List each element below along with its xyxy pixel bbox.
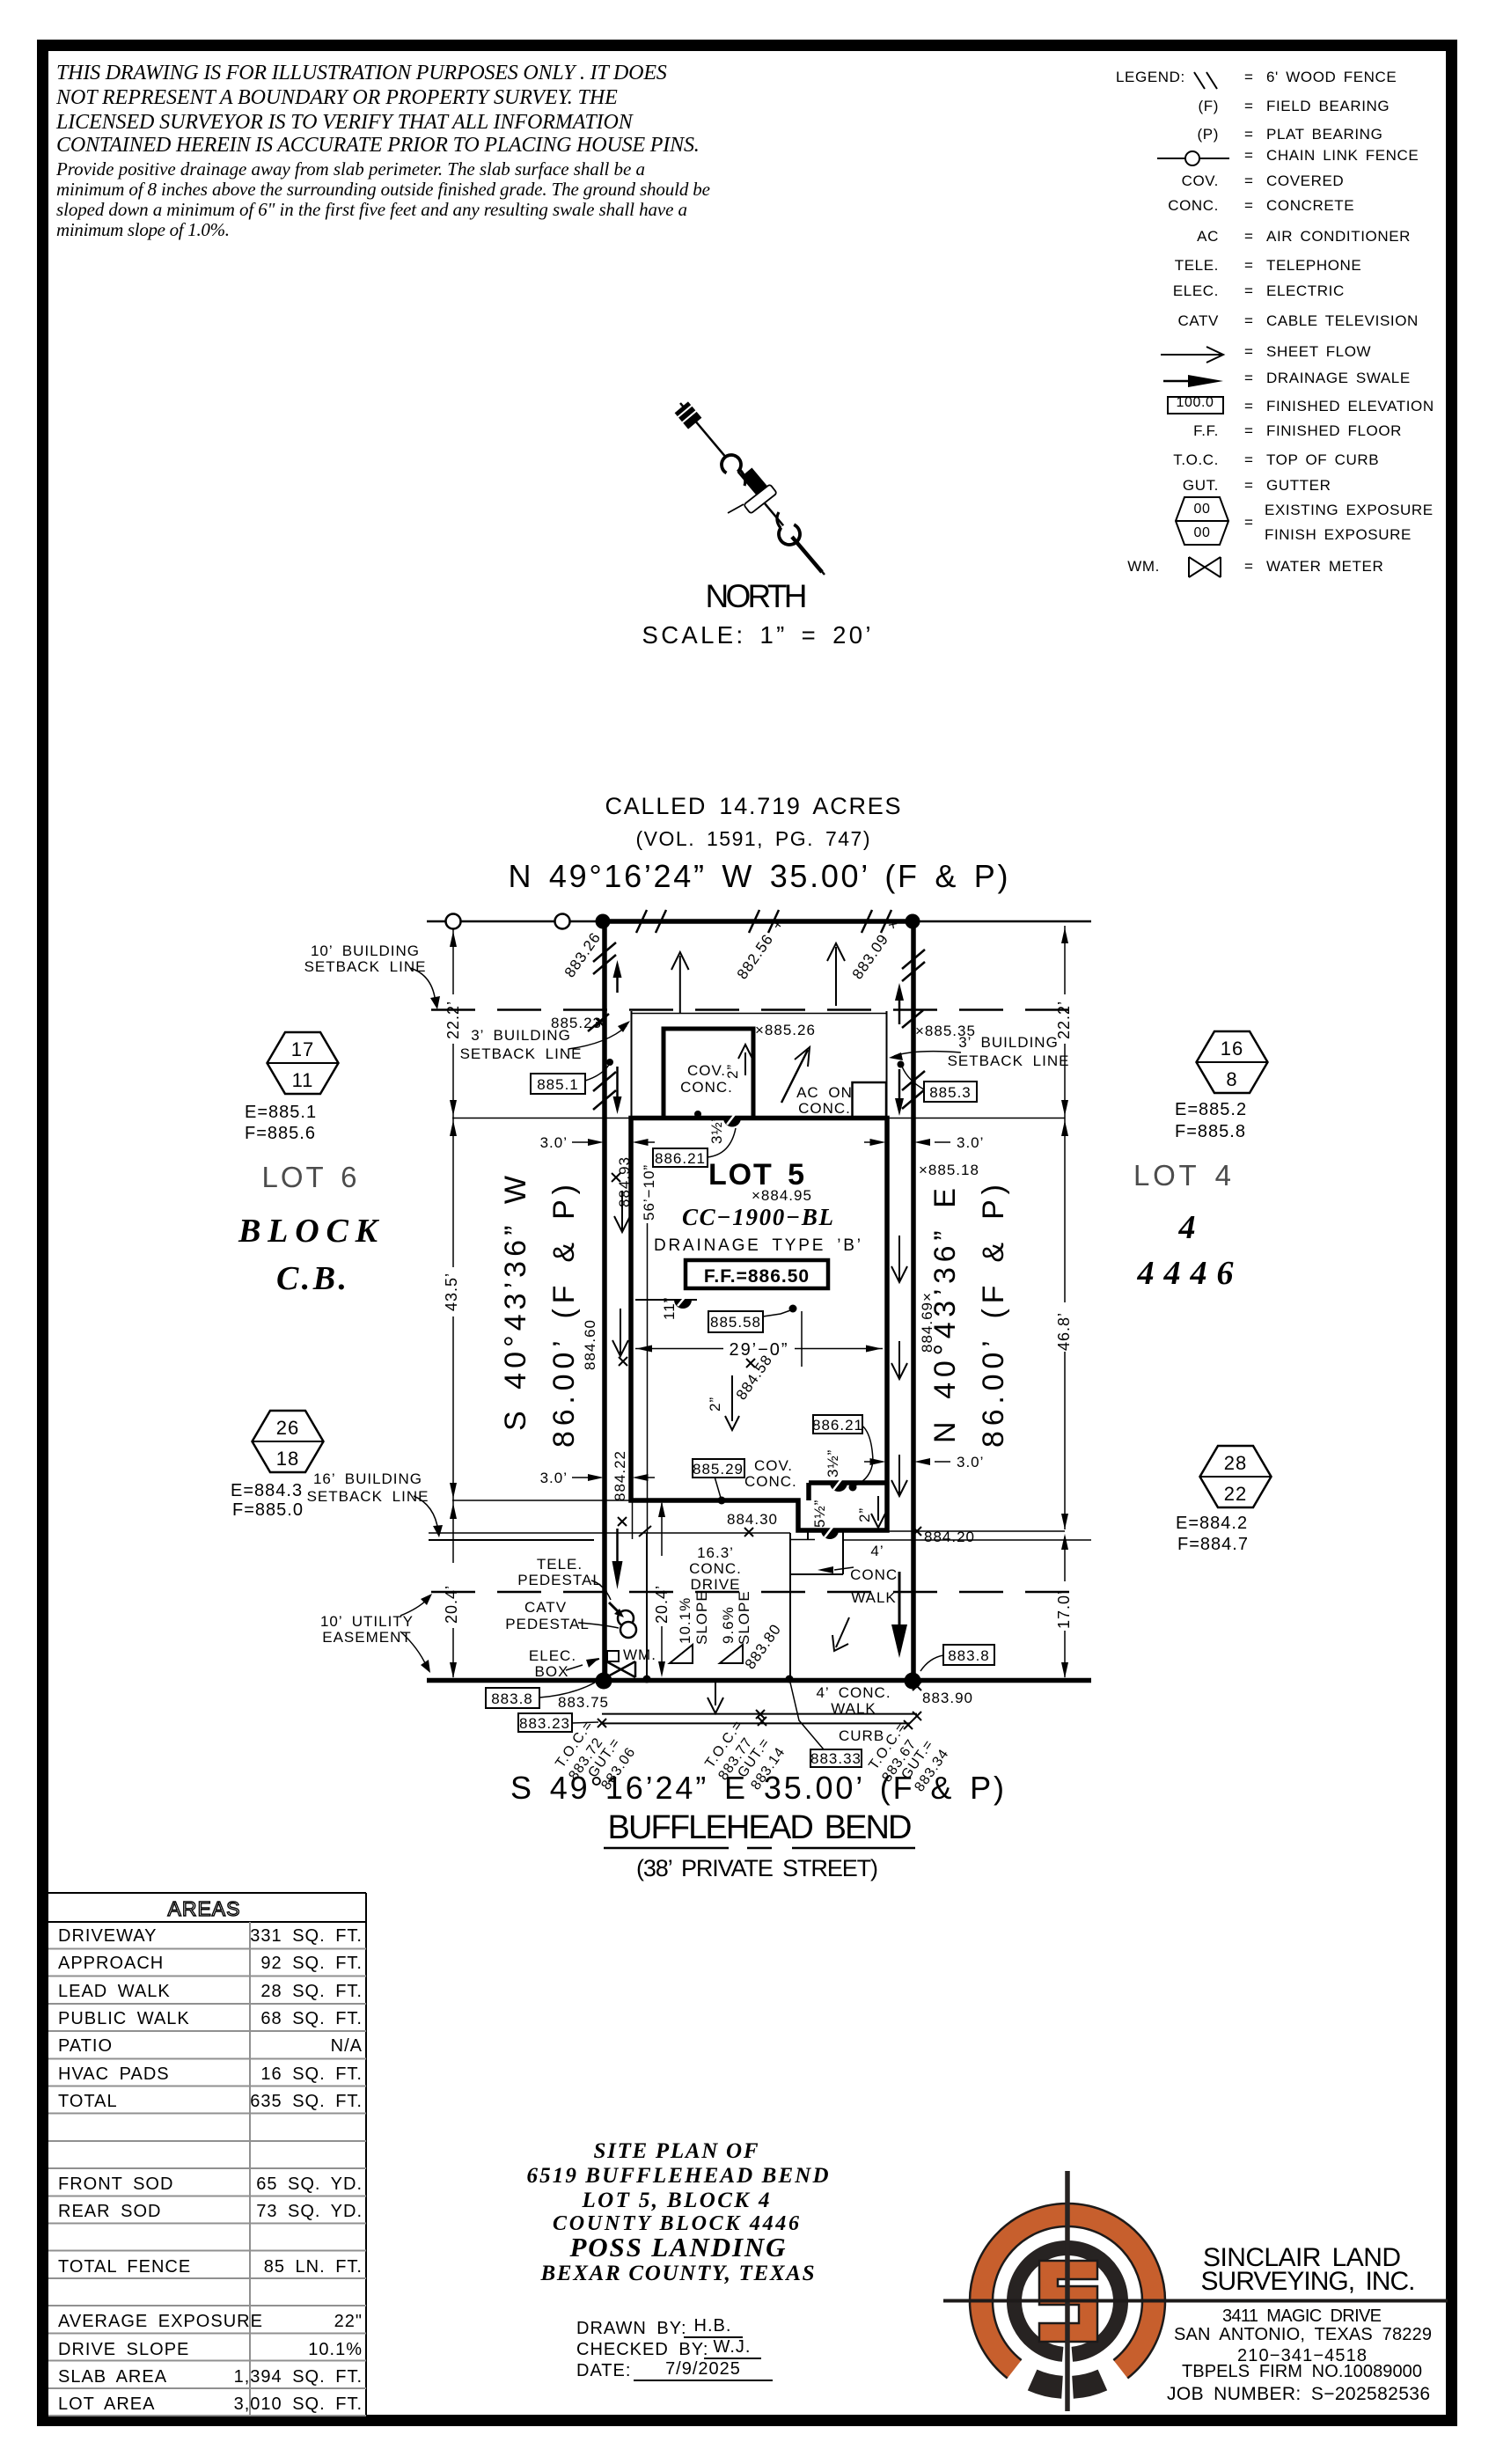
svg-text:PEDESTAL: PEDESTAL bbox=[505, 1616, 590, 1632]
svg-text:883.8: 883.8 bbox=[948, 1647, 990, 1664]
svg-text:2”: 2” bbox=[707, 1397, 723, 1412]
svg-text:=: = bbox=[1244, 126, 1254, 143]
svg-text:ELEC.: ELEC. bbox=[529, 1647, 576, 1664]
svg-text:LEGEND:: LEGEND: bbox=[1116, 69, 1185, 85]
svg-text:SETBACK LINE: SETBACK LINE bbox=[948, 1052, 1070, 1069]
svg-text:884.60: 884.60 bbox=[582, 1319, 598, 1370]
svg-text:8: 8 bbox=[1226, 1068, 1237, 1090]
svg-text:22.2’: 22.2’ bbox=[444, 1001, 462, 1039]
svg-text:16.3’: 16.3’ bbox=[697, 1544, 734, 1561]
svg-text:PEDESTAL: PEDESTAL bbox=[517, 1572, 602, 1588]
svg-text:APPROACH: APPROACH bbox=[58, 1954, 164, 1973]
svg-text:CONC.: CONC. bbox=[744, 1473, 797, 1490]
svg-text:CATV: CATV bbox=[524, 1599, 567, 1616]
svg-text:883.23: 883.23 bbox=[519, 1715, 570, 1732]
svg-text:WATER METER: WATER METER bbox=[1266, 558, 1383, 575]
svg-text:BOX: BOX bbox=[535, 1663, 569, 1680]
svg-text:PLAT BEARING: PLAT BEARING bbox=[1266, 126, 1382, 143]
svg-text:NORTH: NORTH bbox=[706, 578, 809, 614]
svg-text:28 SQ. FT.: 28 SQ. FT. bbox=[260, 1982, 363, 2001]
svg-text:×885.26: ×885.26 bbox=[755, 1022, 816, 1038]
svg-text:CHAIN LINK FENCE: CHAIN LINK FENCE bbox=[1266, 147, 1419, 164]
svg-text:POSS LANDING: POSS LANDING bbox=[569, 2232, 787, 2262]
svg-text:TOP OF CURB: TOP OF CURB bbox=[1266, 451, 1379, 468]
svg-text:3½”: 3½” bbox=[825, 1449, 841, 1478]
svg-text:DRIVEWAY: DRIVEWAY bbox=[58, 1926, 157, 1946]
svg-text:=: = bbox=[1244, 69, 1254, 85]
svg-text:AC: AC bbox=[1197, 228, 1219, 245]
svg-text:COVERED: COVERED bbox=[1266, 172, 1344, 189]
svg-text:WALK: WALK bbox=[831, 1700, 876, 1717]
svg-text:3’ BUILDING: 3’ BUILDING bbox=[958, 1034, 1059, 1051]
svg-text:6' WOOD FENCE: 6' WOOD FENCE bbox=[1266, 69, 1397, 85]
svg-text:SCALE: 1” = 20’: SCALE: 1” = 20’ bbox=[642, 621, 872, 649]
svg-text:WM.: WM. bbox=[1127, 558, 1160, 575]
svg-text:884.30: 884.30 bbox=[727, 1511, 778, 1528]
svg-text:883.8: 883.8 bbox=[491, 1690, 533, 1707]
svg-text:E=884.2: E=884.2 bbox=[1176, 1514, 1248, 1533]
svg-text:CONCRETE: CONCRETE bbox=[1266, 197, 1354, 214]
svg-text:GUT.: GUT. bbox=[1183, 477, 1219, 494]
svg-text:CONC.: CONC. bbox=[798, 1100, 851, 1117]
svg-text:JOB NUMBER: S−202582536: JOB NUMBER: S−202582536 bbox=[1167, 2384, 1431, 2404]
svg-text:=: = bbox=[1244, 558, 1254, 575]
svg-text:NOT REPRESENT A BOUNDARY OR PR: NOT REPRESENT A BOUNDARY OR PROPERTY SUR… bbox=[55, 86, 618, 109]
svg-text:17: 17 bbox=[291, 1038, 314, 1060]
svg-text:LOT 6: LOT 6 bbox=[262, 1161, 358, 1193]
svg-text:65 SQ. YD.: 65 SQ. YD. bbox=[256, 2174, 363, 2194]
svg-text:F=884.7: F=884.7 bbox=[1177, 1535, 1249, 1554]
svg-text:SLAB AREA: SLAB AREA bbox=[58, 2367, 167, 2387]
svg-text:COV.: COV. bbox=[754, 1457, 793, 1474]
svg-text:22": 22" bbox=[334, 2312, 363, 2331]
svg-text:3½”: 3½” bbox=[708, 1116, 725, 1144]
svg-text:FRONT SOD: FRONT SOD bbox=[58, 2174, 173, 2194]
svg-text:SETBACK LINE: SETBACK LINE bbox=[460, 1045, 583, 1062]
svg-text:=: = bbox=[1244, 514, 1254, 531]
svg-text:EXISTING EXPOSURE: EXISTING EXPOSURE bbox=[1265, 502, 1434, 518]
svg-text:11”: 11” bbox=[661, 1297, 678, 1320]
svg-text:6519 BUFFLEHEAD BEND: 6519 BUFFLEHEAD BEND bbox=[527, 2164, 829, 2188]
svg-text:22.2’: 22.2’ bbox=[1055, 1001, 1073, 1039]
svg-text:SLOPE: SLOPE bbox=[693, 1590, 710, 1645]
svg-text:COV.: COV. bbox=[687, 1062, 726, 1079]
svg-text:SAN ANTONIO, TEXAS 78229: SAN ANTONIO, TEXAS 78229 bbox=[1174, 2325, 1433, 2344]
svg-text:85 LN. FT.: 85 LN. FT. bbox=[264, 2257, 363, 2277]
svg-text:COV.: COV. bbox=[1182, 172, 1219, 189]
svg-text:20.4’: 20.4’ bbox=[653, 1585, 671, 1624]
svg-text:SETBACK LINE: SETBACK LINE bbox=[307, 1488, 429, 1505]
svg-text:=: = bbox=[1244, 98, 1254, 114]
svg-text:S 49°16’24” E 35.00’ (F & P): S 49°16’24” E 35.00’ (F & P) bbox=[510, 1770, 1005, 1806]
svg-text:22: 22 bbox=[1224, 1483, 1247, 1505]
svg-text:=: = bbox=[1244, 228, 1254, 245]
svg-text:3411 MAGIC DRIVE: 3411 MAGIC DRIVE bbox=[1222, 2306, 1382, 2326]
svg-text:ELEC.: ELEC. bbox=[1173, 282, 1219, 299]
svg-text:SHEET FLOW: SHEET FLOW bbox=[1266, 343, 1371, 360]
svg-text:635 SQ. FT.: 635 SQ. FT. bbox=[250, 2092, 363, 2111]
svg-text:BUFFLEHEAD BEND: BUFFLEHEAD BEND bbox=[608, 1809, 913, 1846]
svg-text:LOT 5, BLOCK 4: LOT 5, BLOCK 4 bbox=[582, 2189, 770, 2212]
svg-text:WALK: WALK bbox=[851, 1589, 897, 1606]
svg-text:CONTAINED HEREIN IS ACCURATE P: CONTAINED HEREIN IS ACCURATE PRIOR TO PL… bbox=[56, 134, 700, 157]
svg-text:×885.18: ×885.18 bbox=[919, 1162, 979, 1178]
svg-text:AIR CONDITIONER: AIR CONDITIONER bbox=[1266, 228, 1411, 245]
svg-text:=: = bbox=[1244, 172, 1254, 189]
svg-text:68 SQ. FT.: 68 SQ. FT. bbox=[260, 2009, 363, 2028]
svg-text:16 SQ. FT.: 16 SQ. FT. bbox=[260, 2064, 363, 2084]
svg-text:5½”: 5½” bbox=[811, 1500, 828, 1528]
svg-text:H.B.: H.B. bbox=[694, 2316, 732, 2336]
svg-text:331 SQ. FT.: 331 SQ. FT. bbox=[250, 1926, 363, 1946]
svg-text:26: 26 bbox=[276, 1417, 299, 1439]
svg-text:GUTTER: GUTTER bbox=[1266, 477, 1331, 494]
svg-text:CONC.: CONC. bbox=[1168, 197, 1219, 214]
svg-text:DATE:: DATE: bbox=[576, 2361, 631, 2380]
svg-text:00: 00 bbox=[1194, 525, 1211, 540]
svg-text:3.0’: 3.0’ bbox=[957, 1134, 984, 1151]
svg-text:=: = bbox=[1244, 398, 1254, 414]
svg-text:=: = bbox=[1244, 343, 1254, 360]
svg-text:PUBLIC WALK: PUBLIC WALK bbox=[58, 2009, 190, 2028]
svg-text:E=885.2: E=885.2 bbox=[1175, 1100, 1247, 1119]
svg-text:=: = bbox=[1244, 147, 1254, 164]
svg-text:4’ CONC.: 4’ CONC. bbox=[816, 1684, 891, 1701]
svg-text:4: 4 bbox=[1178, 1209, 1196, 1246]
svg-text:SETBACK LINE: SETBACK LINE bbox=[304, 958, 427, 975]
svg-text:1,394 SQ. FT.: 1,394 SQ. FT. bbox=[234, 2367, 363, 2387]
svg-text:3,010 SQ. FT.: 3,010 SQ. FT. bbox=[234, 2394, 363, 2414]
svg-text:T.O.C.: T.O.C. bbox=[1173, 451, 1219, 468]
svg-text:7/9/2025: 7/9/2025 bbox=[665, 2359, 741, 2379]
svg-text:DRIVE: DRIVE bbox=[691, 1576, 741, 1593]
svg-text:28: 28 bbox=[1224, 1452, 1247, 1474]
svg-text:TOTAL: TOTAL bbox=[58, 2092, 118, 2111]
svg-text:46.8’: 46.8’ bbox=[1055, 1312, 1073, 1351]
svg-text:(F): (F) bbox=[1198, 98, 1219, 114]
svg-text:10.1%: 10.1% bbox=[308, 2340, 363, 2359]
svg-text:3.0’: 3.0’ bbox=[957, 1454, 984, 1470]
svg-text:LOT 4: LOT 4 bbox=[1133, 1159, 1232, 1192]
svg-text:sloped down a minimum of 6" in: sloped down a minimum of 6" in the first… bbox=[56, 199, 687, 220]
svg-text:16: 16 bbox=[1221, 1038, 1243, 1060]
svg-text:2”: 2” bbox=[856, 1507, 873, 1522]
svg-text:16’ BUILDING: 16’ BUILDING bbox=[313, 1470, 422, 1487]
svg-text:TBPELS FIRM NO.10089000: TBPELS FIRM NO.10089000 bbox=[1182, 2362, 1423, 2381]
svg-text:F.F.: F.F. bbox=[1193, 422, 1219, 439]
svg-text:3.0’: 3.0’ bbox=[540, 1134, 568, 1151]
svg-text:LOT 5: LOT 5 bbox=[708, 1158, 805, 1192]
svg-text:=: = bbox=[1244, 451, 1254, 468]
svg-text:LEAD WALK: LEAD WALK bbox=[58, 1982, 171, 2001]
svg-text:CONC.: CONC. bbox=[689, 1560, 742, 1577]
svg-text:11: 11 bbox=[292, 1069, 314, 1091]
svg-text:minimum of 8 inches above the: minimum of 8 inches above the surroundin… bbox=[56, 179, 710, 200]
svg-text:CABLE TELEVISION: CABLE TELEVISION bbox=[1266, 312, 1419, 329]
svg-text:Provide positive drainage away: Provide positive drainage away from slab… bbox=[55, 158, 645, 180]
svg-text:EASEMENT: EASEMENT bbox=[322, 1629, 412, 1646]
svg-text:20.4’: 20.4’ bbox=[443, 1585, 460, 1624]
svg-text:884.93: 884.93 bbox=[616, 1156, 633, 1207]
svg-text:CONC.: CONC. bbox=[850, 1566, 903, 1583]
svg-text:WM.: WM. bbox=[623, 1646, 656, 1663]
svg-text:minimum slope of 1.0%.: minimum slope of 1.0%. bbox=[56, 219, 230, 240]
svg-text:CHECKED BY:: CHECKED BY: bbox=[576, 2340, 708, 2359]
svg-text:=: = bbox=[1244, 370, 1254, 386]
svg-text:885.1: 885.1 bbox=[537, 1076, 579, 1093]
svg-text:2”: 2” bbox=[724, 1064, 741, 1079]
svg-text:883.75: 883.75 bbox=[558, 1694, 609, 1711]
svg-text:F=885.6: F=885.6 bbox=[245, 1124, 316, 1143]
svg-text:LICENSED SURVEYOR IS TO VERIFY: LICENSED SURVEYOR IS TO VERIFY THAT ALL … bbox=[55, 111, 634, 134]
svg-text:ELECTRIC: ELECTRIC bbox=[1266, 282, 1345, 299]
svg-text:885.3: 885.3 bbox=[929, 1084, 972, 1101]
svg-text:884.20: 884.20 bbox=[924, 1529, 975, 1545]
svg-text:4’: 4’ bbox=[870, 1543, 884, 1559]
svg-text:HVAC PADS: HVAC PADS bbox=[58, 2064, 170, 2084]
svg-text:56’−10”: 56’−10” bbox=[641, 1164, 657, 1221]
svg-text:CURB: CURB bbox=[839, 1727, 884, 1744]
svg-text:TELEPHONE: TELEPHONE bbox=[1266, 257, 1361, 274]
svg-text:CALLED 14.719 ACRES: CALLED 14.719 ACRES bbox=[605, 793, 902, 819]
svg-text:10’ UTILITY: 10’ UTILITY bbox=[320, 1613, 414, 1630]
svg-text:884.22: 884.22 bbox=[612, 1450, 628, 1501]
svg-text:F.F.=886.50: F.F.=886.50 bbox=[704, 1266, 810, 1287]
svg-text:BLOCK: BLOCK bbox=[238, 1213, 380, 1250]
svg-text:PATIO: PATIO bbox=[58, 2036, 113, 2056]
svg-text:43.5’: 43.5’ bbox=[443, 1272, 460, 1311]
svg-text:=: = bbox=[1244, 282, 1254, 299]
svg-text:=: = bbox=[1244, 312, 1254, 329]
svg-text:17.0’: 17.0’ bbox=[1055, 1590, 1073, 1629]
svg-text:(VOL. 1591, PG. 747): (VOL. 1591, PG. 747) bbox=[636, 827, 871, 850]
svg-text:(P): (P) bbox=[1198, 126, 1219, 143]
svg-text:883.90: 883.90 bbox=[922, 1690, 973, 1706]
svg-text:CONC.: CONC. bbox=[680, 1079, 733, 1096]
svg-text:REAR SOD: REAR SOD bbox=[58, 2202, 161, 2221]
svg-text:AC ON: AC ON bbox=[796, 1084, 853, 1101]
svg-text:00: 00 bbox=[1194, 502, 1211, 517]
svg-text:FINISHED FLOOR: FINISHED FLOOR bbox=[1266, 422, 1402, 439]
svg-text:9.6%: 9.6% bbox=[720, 1606, 737, 1644]
svg-text:92 SQ. FT.: 92 SQ. FT. bbox=[260, 1954, 363, 1973]
svg-text:FINISH EXPOSURE: FINISH EXPOSURE bbox=[1265, 526, 1412, 543]
svg-text:F=885.8: F=885.8 bbox=[1175, 1122, 1246, 1141]
svg-text:F=885.0: F=885.0 bbox=[232, 1500, 304, 1520]
svg-text:DRAINAGE TYPE ’B’: DRAINAGE TYPE ’B’ bbox=[654, 1236, 862, 1255]
svg-text:N/A: N/A bbox=[331, 2036, 363, 2056]
svg-text:SURVEYING, INC.: SURVEYING, INC. bbox=[1201, 2267, 1417, 2296]
svg-text:885.58: 885.58 bbox=[710, 1314, 761, 1331]
svg-text:10.1%: 10.1% bbox=[677, 1597, 693, 1644]
svg-text:TELE.: TELE. bbox=[537, 1556, 583, 1573]
svg-text:73 SQ. YD.: 73 SQ. YD. bbox=[256, 2202, 363, 2221]
svg-text:885.29: 885.29 bbox=[693, 1461, 744, 1478]
svg-text:AVERAGE EXPOSURE: AVERAGE EXPOSURE bbox=[58, 2312, 263, 2331]
svg-text:=: = bbox=[1244, 422, 1254, 439]
svg-text:SLOPE: SLOPE bbox=[736, 1590, 752, 1645]
svg-text:N 40°43’36” E: N 40°43’36” E bbox=[928, 1187, 962, 1443]
svg-text:TOTAL FENCE: TOTAL FENCE bbox=[58, 2257, 191, 2277]
svg-text:=: = bbox=[1244, 257, 1254, 274]
svg-text:BEXAR COUNTY, TEXAS: BEXAR COUNTY, TEXAS bbox=[540, 2262, 815, 2285]
svg-text:883.33: 883.33 bbox=[810, 1750, 862, 1767]
svg-text:10’ BUILDING: 10’ BUILDING bbox=[311, 942, 420, 959]
svg-text:886.21: 886.21 bbox=[655, 1150, 706, 1167]
svg-text:SITE PLAN OF: SITE PLAN OF bbox=[594, 2139, 759, 2163]
svg-text:FINISHED ELEVATION: FINISHED ELEVATION bbox=[1266, 398, 1434, 414]
svg-text:THIS DRAWING IS FOR ILLUSTRATI: THIS DRAWING IS FOR ILLUSTRATION PURPOSE… bbox=[56, 62, 667, 84]
svg-text:TELE.: TELE. bbox=[1175, 257, 1219, 274]
svg-text:DRAWN BY:: DRAWN BY: bbox=[576, 2319, 687, 2338]
svg-text:E=884.3: E=884.3 bbox=[231, 1481, 303, 1500]
svg-text:(38’ PRIVATE STREET): (38’ PRIVATE STREET) bbox=[636, 1855, 879, 1881]
svg-text:E=885.1: E=885.1 bbox=[245, 1103, 317, 1122]
svg-text:DRAINAGE SWALE: DRAINAGE SWALE bbox=[1266, 370, 1411, 386]
svg-text:CATV: CATV bbox=[1178, 312, 1220, 329]
svg-text:886.21: 886.21 bbox=[812, 1417, 863, 1434]
svg-text:DRIVE SLOPE: DRIVE SLOPE bbox=[58, 2340, 189, 2359]
svg-text:FIELD BEARING: FIELD BEARING bbox=[1266, 98, 1390, 114]
svg-text:3.0’: 3.0’ bbox=[540, 1470, 568, 1486]
svg-text:=: = bbox=[1244, 197, 1254, 214]
svg-text:3’ BUILDING: 3’ BUILDING bbox=[471, 1027, 571, 1044]
svg-text:LOT AREA: LOT AREA bbox=[58, 2394, 155, 2414]
svg-text:18: 18 bbox=[276, 1448, 299, 1470]
svg-text:AREAS: AREAS bbox=[168, 1897, 241, 1920]
svg-text:W.J.: W.J. bbox=[714, 2337, 752, 2357]
svg-text:=: = bbox=[1244, 477, 1254, 494]
